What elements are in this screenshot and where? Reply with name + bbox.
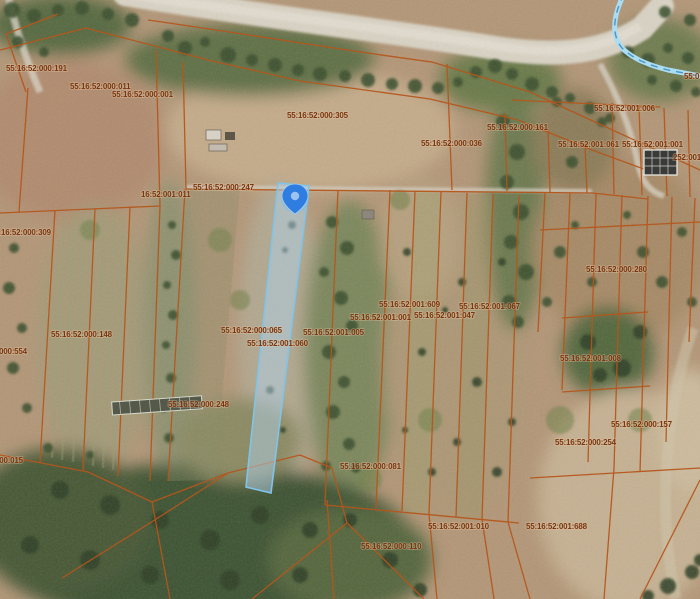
parcel-label: 55:16:52:000:248 [168,400,230,409]
parcel-label: 55:16:52:000:280 [586,265,648,274]
parcel-label: 55:16:52:000:001 [112,90,174,99]
parcel-label: 55:16:52:001:047 [414,311,476,320]
farm-building [206,130,221,140]
parcel-label: 55:16:52:000:305 [287,111,349,120]
parcel-label: 55:16:52:001:008 [560,354,622,363]
farm-building [209,144,227,151]
parcel-label: 55:16:52:000:161 [487,123,549,132]
parcel-label: 55:16:52:001:688 [526,522,588,531]
parcel-label: 55:16:52:001:067 [459,302,521,311]
parcel-label: 252:001 [673,153,700,162]
shed [362,210,374,219]
parcel-label: 55:16:52:000:148 [51,330,113,339]
map-canvas: 55:16:52:000:191 55:16:52:000:011 55:16:… [0,0,700,599]
parcel-label: 52:000:554 [0,347,28,356]
parcel-label: 55:16:52:000:247 [193,183,255,192]
parcel-label: 16:52:001:011 [141,190,191,199]
parcel-label: 55:16:52:001:006 [594,104,656,113]
parcel-label: 52:000:015 [0,456,24,465]
satellite-map-viewport[interactable]: 55:16:52:000:191 55:16:52:000:011 55:16:… [0,0,700,599]
parcel-label: 55:16:52:001:001 [350,313,412,322]
parcel-label: 55:16:52:000:081 [340,462,402,471]
parcel-label: 55:16:52:000:191 [6,64,68,73]
parcel-label: 55:16:52:001:061 [558,140,620,149]
parcel-label: 55:16:52:000:036 [421,139,483,148]
parcel-label: 55:0 [684,72,700,81]
farm-building [225,132,235,140]
parcel-label: 55:16:52:001:609 [379,300,441,309]
parcel-label: 55:16:52:001:001 [622,140,684,149]
parcel-label: 55:16:52:001:010 [428,522,490,531]
parcel-label: 55:16:52:001:005 [303,328,365,337]
parcel-label: 55:16:52:000:254 [555,438,617,447]
parcel-label: 55:16:52:000:110 [361,542,422,551]
parcel-label: 55:16:52:000:157 [611,420,673,429]
parcel-label: 55:16:52:000:065 [221,326,283,335]
parcel-label: 55:16:52:000:309 [0,228,52,237]
parcel-label: 55:16:52:001:060 [247,339,309,348]
